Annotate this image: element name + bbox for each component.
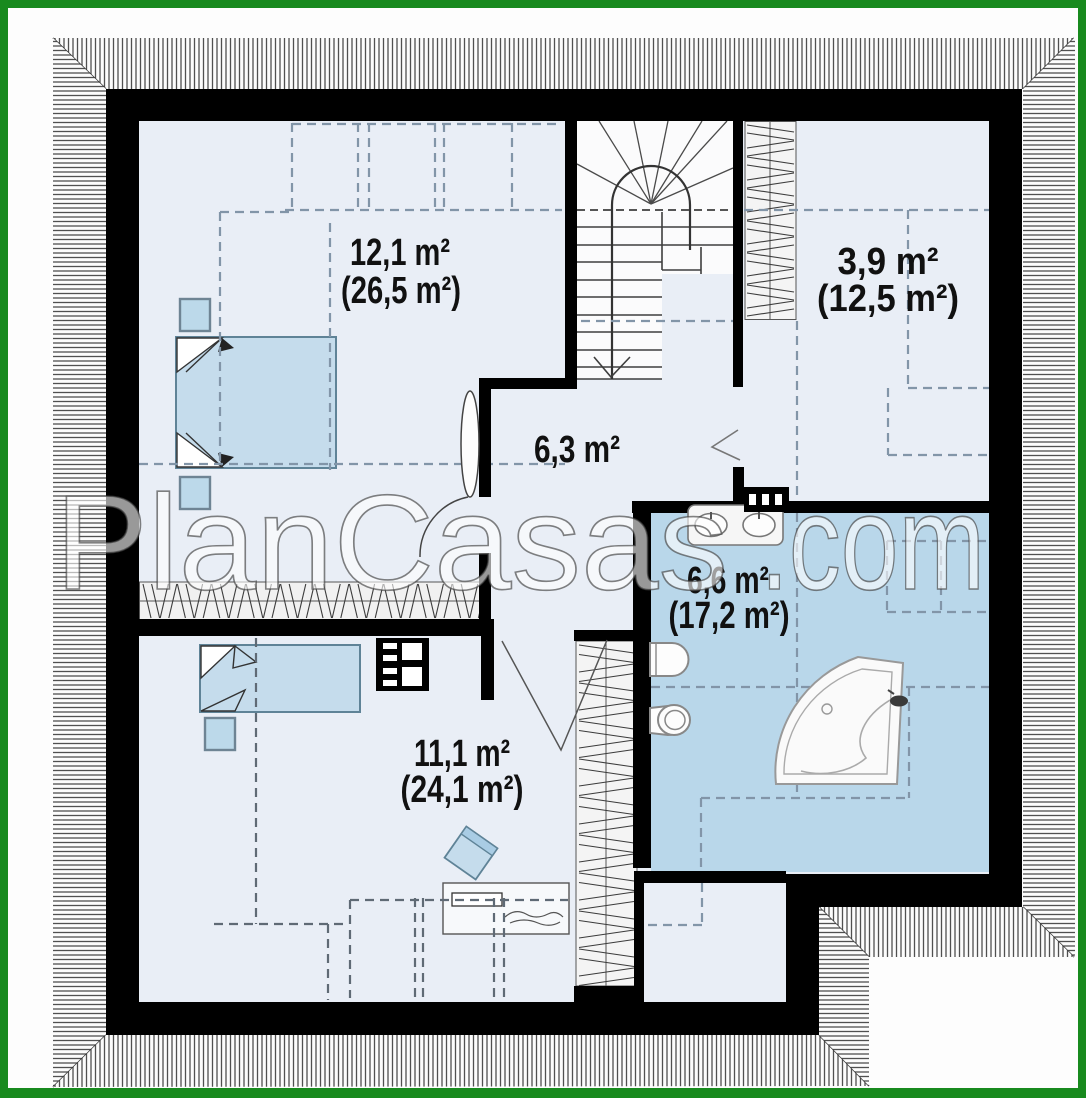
- svg-text:(12,5 m²): (12,5 m²): [817, 278, 959, 320]
- svg-text:(24,1 m²): (24,1 m²): [401, 769, 524, 811]
- svg-text:(26,5 m²): (26,5 m²): [341, 270, 461, 312]
- svg-text:3,9 m²: 3,9 m²: [838, 241, 939, 283]
- svg-text:6,3 m²: 6,3 m²: [534, 429, 620, 471]
- svg-text:.com: .com: [760, 467, 985, 618]
- svg-text:PlanCasas: PlanCasas: [55, 467, 728, 618]
- svg-text:12,1 m²: 12,1 m²: [350, 232, 450, 274]
